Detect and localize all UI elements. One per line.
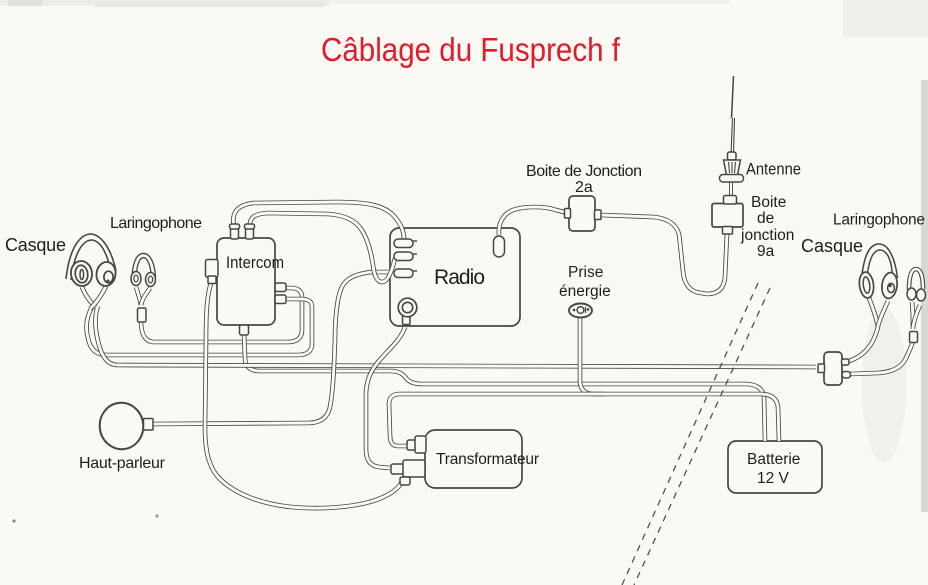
svg-text:Casque: Casque [801,236,863,256]
svg-text:Boite: Boite [751,194,786,211]
svg-text:énergie: énergie [559,283,611,300]
svg-text:Laringophone: Laringophone [110,215,202,232]
svg-text:de: de [757,210,774,227]
svg-text:Câblage du Fusprech f: Câblage du Fusprech f [321,31,621,68]
svg-text:2a: 2a [575,179,593,196]
svg-text:Intercom: Intercom [226,254,284,272]
svg-text:Boite de Jonction: Boite de Jonction [526,163,642,180]
svg-text:Prise: Prise [568,264,603,281]
svg-text:Radio: Radio [434,266,485,289]
svg-text:Casque: Casque [5,235,66,255]
svg-text:Laringophone: Laringophone [833,212,925,229]
svg-text:Antenne: Antenne [746,161,801,179]
svg-text:Transformateur: Transformateur [436,451,539,468]
svg-text:12 V: 12 V [757,470,790,487]
svg-text:9a: 9a [757,243,775,260]
svg-text:Haut-parleur: Haut-parleur [79,455,166,472]
svg-text:Batterie: Batterie [747,451,800,468]
svg-text:jonction: jonction [740,227,794,244]
